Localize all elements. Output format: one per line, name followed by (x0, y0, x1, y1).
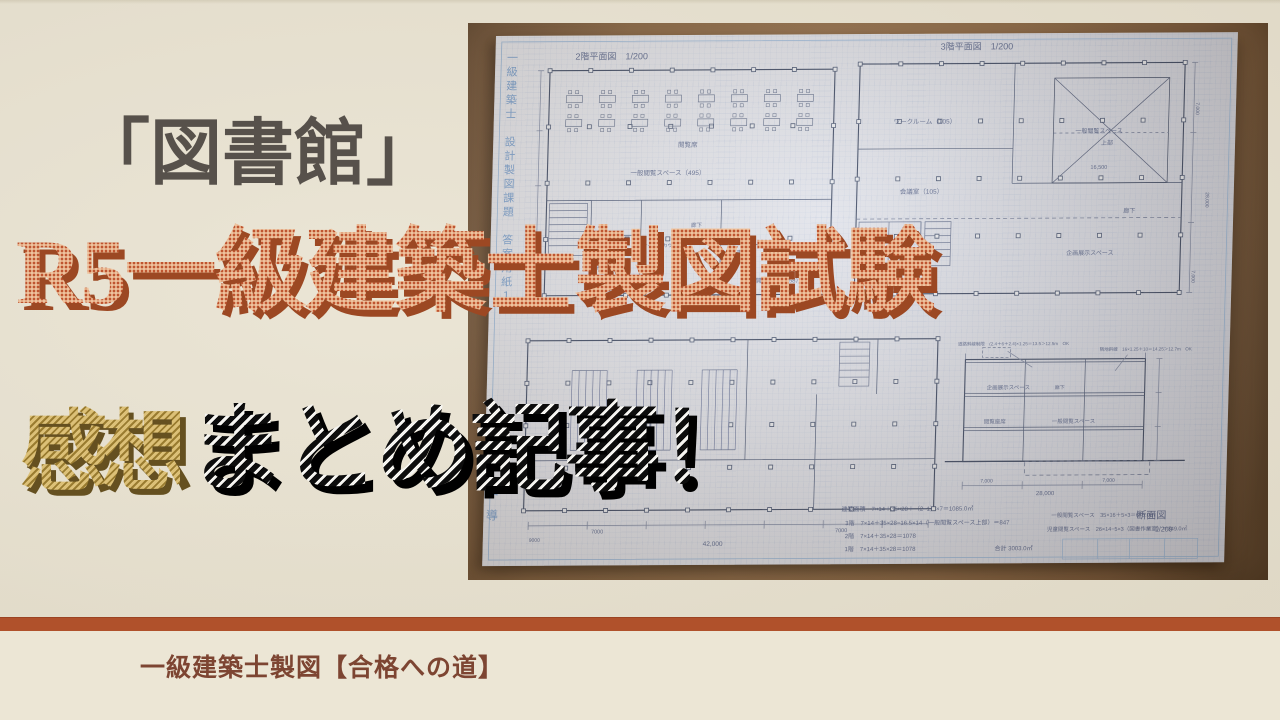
svg-text:9000: 9000 (529, 538, 540, 544)
summary-black-segment: まとめ記事！ まとめ記事！ (188, 400, 752, 497)
summary-gold-segment: 感想 感想 (20, 410, 180, 498)
svg-text:企画展示スペース: 企画展示スペース (987, 383, 1031, 391)
svg-text:42,000: 42,000 (703, 541, 723, 548)
svg-text:隣地斜線 16×1.25＋10＝14.25＞12.7m OK: 隣地斜線 16×1.25＋10＝14.25＞12.7m OK (1100, 345, 1192, 352)
svg-text:廊下: 廊下 (1123, 207, 1135, 215)
summary-black-fill: まとめ記事！ (188, 394, 752, 503)
svg-text:会議室（105）: 会議室（105） (900, 187, 944, 196)
thumbnail-stage: 2階平面図 1/2003階平面図 1/200断面図1/200閲覧席一般閲覧スペー… (0, 0, 1280, 720)
footer-strip: 一級建築士製図【合格への道】 (0, 631, 1280, 720)
svg-text:一般閲覧スペース（495）: 一般閲覧スペース（495） (630, 168, 705, 177)
svg-text:ワークルーム（105）: ワークルーム（105） (894, 118, 957, 126)
svg-text:7,000: 7,000 (1102, 478, 1115, 484)
svg-text:7,000: 7,000 (980, 478, 993, 484)
svg-text:企画展示スペース: 企画展示スペース (1066, 249, 1113, 257)
svg-text:2階 7×14＋35×28＝1078: 2階 7×14＋35×28＝1078 (845, 532, 917, 540)
svg-text:上部: 上部 (1101, 139, 1113, 147)
svg-text:7,000: 7,000 (1194, 102, 1200, 115)
svg-text:建築面積 7×14＋35×28＋（2−1）×7＝1085.0: 建築面積 7×14＋35×28＋（2−1）×7＝1085.0㎡ (841, 505, 973, 514)
svg-text:閲覧席: 閲覧席 (678, 140, 698, 149)
svg-text:1階 7×14＋35×28＝1078: 1階 7×14＋35×28＝1078 (844, 545, 916, 553)
summary-gold-fill: 感想 (20, 405, 180, 502)
svg-text:28,000: 28,000 (1036, 491, 1055, 497)
svg-text:28,000: 28,000 (1203, 192, 1209, 208)
title-library-text: 「図書館」 (78, 94, 438, 199)
title-summary-text: 感想 感想 まとめ記事！ まとめ記事！ (20, 400, 752, 498)
svg-text:16,500: 16,500 (1090, 165, 1107, 171)
svg-text:児童閲覧スペース 26×14−5×3（図書作業室）＝349.: 児童閲覧スペース 26×14−5×3（図書作業室）＝349.0㎡ (1047, 524, 1188, 533)
svg-text:道路斜線制限 (2.4＋6＋2.4)×1.25＝13.5＞1: 道路斜線制限 (2.4＋6＋2.4)×1.25＝13.5＞12.5m OK (958, 340, 1069, 348)
svg-text:廊下: 廊下 (1055, 384, 1065, 391)
svg-text:一般閲覧スペース 35×16＋5×3＝675.0㎡: 一般閲覧スペース 35×16＋5×3＝675.0㎡ (1051, 511, 1156, 520)
accent-divider-bar (0, 617, 1280, 631)
svg-text:一般閲覧スペース: 一般閲覧スペース (1075, 127, 1122, 135)
svg-text:2階平面図 1/200: 2階平面図 1/200 (575, 51, 648, 61)
svg-text:3階 7×14＋35×28−16.5×14（一般閲覧スペース: 3階 7×14＋35×28−16.5×14（一般閲覧スペース上部）＝847 (845, 518, 1010, 527)
svg-text:3階平面図 1/200: 3階平面図 1/200 (941, 41, 1014, 51)
svg-text:合計 3003.0㎡: 合計 3003.0㎡ (994, 544, 1032, 552)
svg-text:7,000: 7,000 (1189, 270, 1195, 283)
svg-text:一般閲覧スペース: 一般閲覧スペース (1052, 417, 1096, 425)
title-exam-fill: R5一級建築士製図試験 (16, 221, 934, 323)
channel-name: 一級建築士製図【合格への道】 (140, 648, 504, 684)
svg-text:7000: 7000 (591, 529, 603, 535)
svg-text:閲覧座席: 閲覧座席 (984, 417, 1007, 425)
title-exam-text: R5一級建築士製図試験 R5一級建築士製図試験 (16, 226, 934, 318)
